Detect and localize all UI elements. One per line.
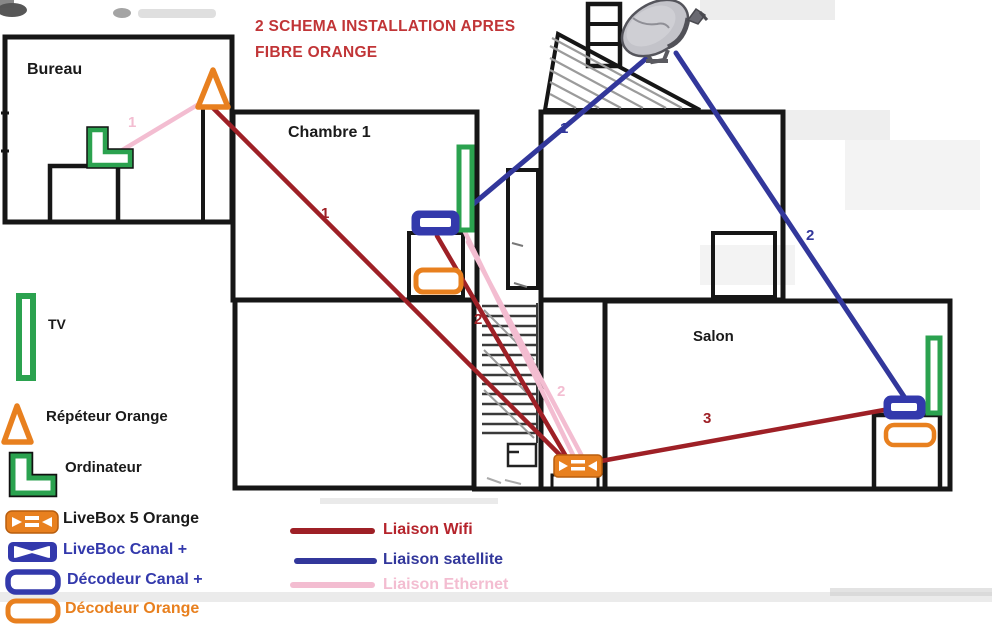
legend-label-liaison-satellite: Liaison satellite	[383, 551, 503, 569]
diagram-title-line1: 2 SCHEMA INSTALLATION APRES	[255, 18, 515, 35]
legend-label-liaison-ethernet: Liaison Ethernet	[383, 576, 508, 594]
connection-label-ethernet-1: 1	[128, 115, 136, 132]
legend-label-ordinateur: Ordinateur	[65, 460, 142, 477]
corridor-door	[508, 170, 538, 288]
legend-label-liaison-wifi: Liaison Wifi	[383, 521, 473, 539]
satellite-dish-icon	[612, 0, 707, 68]
legend-label-livebox5: LiveBox 5 Orange	[63, 510, 199, 528]
decoder-orange-icon	[886, 425, 934, 445]
livebox-orange-icon	[554, 455, 602, 477]
legend-label-decodeur-orange: Décodeur Orange	[65, 600, 199, 618]
legend-icons	[4, 296, 58, 621]
connection-label-ethernet-2: 2	[557, 384, 565, 401]
room-label-chambre1: Chambre 1	[288, 124, 371, 142]
legend-label-decodeur-canal: Décodeur Canal +	[67, 571, 203, 589]
repeater-triangle-icon	[4, 406, 31, 442]
livebox-orange-icon	[6, 511, 58, 533]
decoder-orange-icon	[8, 601, 58, 621]
tv-icon	[928, 338, 940, 413]
repeater-triangle-icon	[198, 70, 228, 107]
satellite-line-salon	[676, 53, 905, 398]
line-legend-swatches	[293, 531, 374, 585]
connection-label-wifi-1: 1	[321, 206, 329, 223]
tv-icon	[459, 147, 472, 230]
connection-label-satellite-2: 2	[806, 228, 814, 245]
salon-room	[605, 301, 950, 489]
decoder-orange-icon	[416, 270, 461, 292]
wifi-line-repeater-livebox	[211, 106, 564, 459]
installation-diagram: 2 SCHEMA INSTALLATION APRES FIBRE ORANGE…	[0, 0, 992, 636]
room-label-salon: Salon	[693, 329, 734, 346]
livebox-canal-icon	[8, 542, 57, 562]
diagram-title-line2: FIBRE ORANGE	[255, 44, 377, 61]
room-label-bureau: Bureau	[27, 61, 82, 79]
wifi-line-livebox-salon	[601, 410, 884, 461]
decoder-canal-icon	[8, 572, 58, 592]
legend-label-liveboc-canal: LiveBoc Canal +	[63, 541, 187, 559]
connection-label-satellite-1: 1	[560, 121, 568, 138]
lower-room	[235, 300, 474, 488]
connection-label-wifi-3: 3	[703, 411, 711, 428]
legend-label-repeater: Répéteur Orange	[46, 409, 168, 426]
tv-icon	[19, 296, 33, 378]
bureau-desk	[50, 166, 118, 222]
connection-label-wifi-2: 2	[474, 312, 482, 329]
legend-label-tv: TV	[48, 317, 66, 332]
